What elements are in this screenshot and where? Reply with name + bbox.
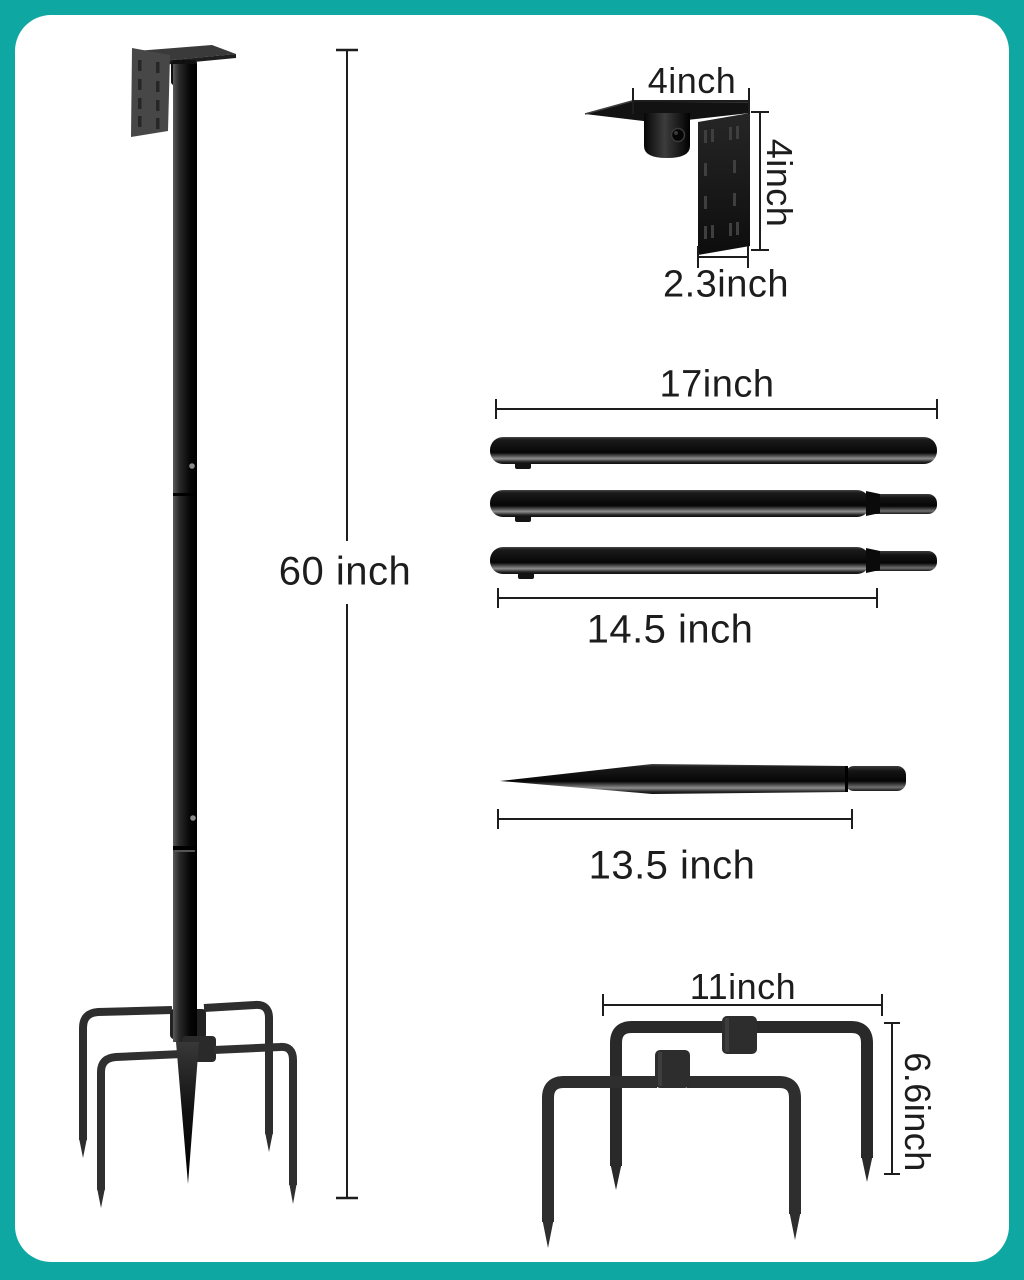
tube-body-length-label: 14.5 inch [587, 608, 754, 653]
white-panel [15, 15, 1009, 1262]
bracket-top-width-label: 4inch [648, 60, 737, 102]
base-stake-height-label: 6.6inch [896, 1052, 938, 1172]
bracket-side-height-label: 4inch [758, 139, 800, 228]
base-span-label: 11inch [690, 966, 796, 1008]
tube-full-length-label: 17inch [660, 364, 775, 407]
spike-length-label: 13.5 inch [589, 844, 756, 889]
product-dimension-diagram: 60 inch 4inch 4inch 2.3inch 17inch 14.5 … [0, 0, 1024, 1280]
bracket-plate-width-label: 2.3inch [663, 264, 789, 307]
diagram-scene [0, 0, 1024, 1280]
pole-height-label: 60 inch [279, 550, 411, 595]
